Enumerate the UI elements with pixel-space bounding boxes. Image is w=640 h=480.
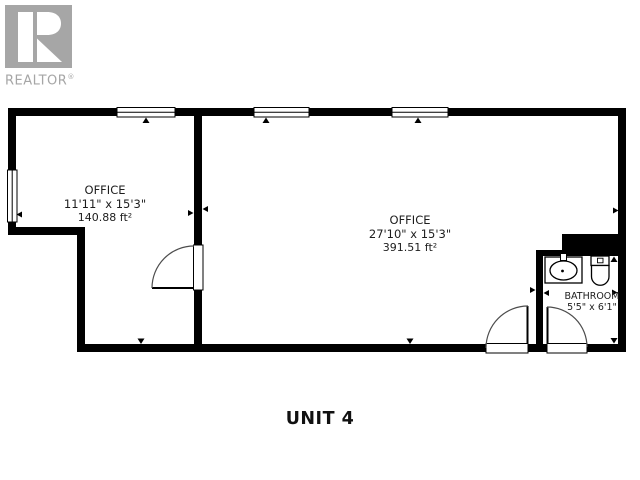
window-icon (254, 108, 309, 118)
sink-icon (545, 254, 582, 284)
dimension-arrow-icon (407, 339, 414, 345)
room-name: BATHROOM (550, 291, 634, 302)
room-area: 140.88 ft² (25, 211, 185, 225)
room-area: 391.51 ft² (330, 241, 490, 255)
dimension-arrow-icon (138, 339, 145, 345)
room-label-bathroom: BATHROOM 5'5" x 6'1" (550, 291, 634, 313)
dimension-arrow-icon (544, 290, 550, 296)
dimension-arrow-icon (143, 118, 150, 124)
dimension-arrow-icon (188, 210, 194, 216)
window-icon (8, 170, 18, 222)
room-label-office-1: OFFICE 11'11" x 15'3" 140.88 ft² (25, 183, 185, 225)
walls (8, 108, 626, 352)
door-swing-icon (486, 306, 528, 348)
dimension-arrow-icon (415, 118, 422, 124)
dimension-arrow-icon (263, 118, 270, 124)
dimension-arrow-icon (611, 338, 618, 344)
floor-plan-drawing (0, 0, 640, 480)
door-swings (152, 246, 587, 348)
door-swing-icon (547, 307, 587, 347)
toilet-icon (591, 256, 609, 285)
room-dimensions: 27'10" x 15'3" (330, 227, 490, 241)
room-dimensions: 5'5" x 6'1" (550, 302, 634, 313)
dimension-arrow-icon (611, 257, 618, 263)
dimension-arrow-icon (203, 206, 209, 212)
room-name: OFFICE (330, 213, 490, 227)
room-label-office-2: OFFICE 27'10" x 15'3" 391.51 ft² (330, 213, 490, 255)
dimension-arrow-icon (530, 287, 536, 293)
window-icon (117, 108, 175, 118)
room-name: OFFICE (25, 183, 185, 197)
room-dimensions: 11'11" x 15'3" (25, 197, 185, 211)
unit-label: UNIT 4 (0, 409, 640, 429)
floor-plan-page: REALTOR® (0, 0, 640, 480)
dimension-arrow-icon (613, 208, 619, 214)
door-swing-icon (152, 246, 194, 288)
window-icon (392, 108, 448, 118)
